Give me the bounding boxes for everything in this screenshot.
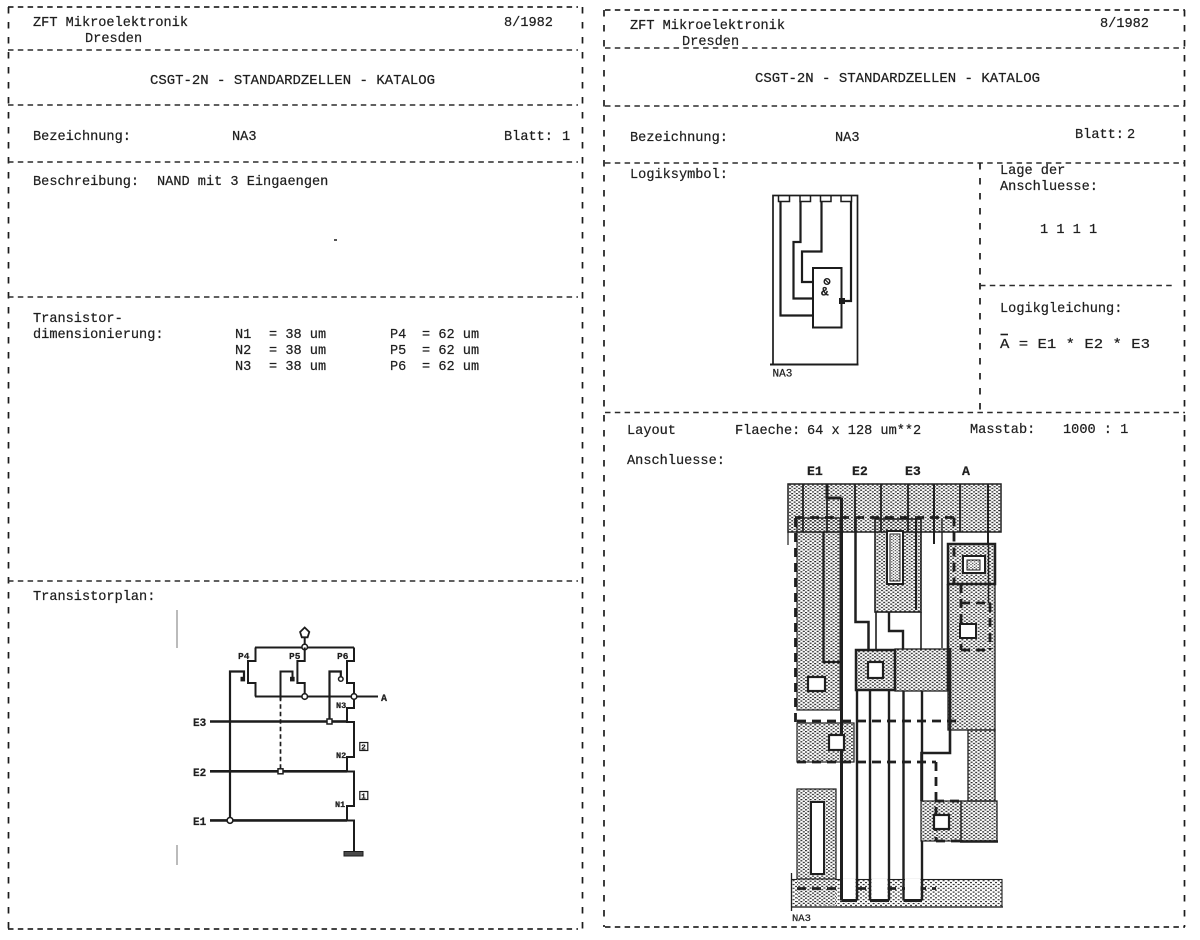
svg-text:N3: N3	[235, 360, 251, 375]
svg-text:P5: P5	[390, 344, 406, 359]
svg-text:= 62 um: = 62 um	[422, 328, 479, 343]
svg-text:Dresden: Dresden	[682, 35, 739, 50]
svg-text:E2: E2	[193, 768, 206, 780]
svg-text:N3: N3	[336, 701, 346, 711]
svg-text:Logiksymbol:: Logiksymbol:	[630, 168, 728, 183]
svg-text:Dresden: Dresden	[85, 32, 142, 47]
svg-text:E1: E1	[807, 464, 823, 479]
svg-text:1: 1	[562, 130, 570, 145]
svg-text:2: 2	[361, 745, 366, 753]
svg-text:CSGT-2N - STANDARDZELLEN - KAT: CSGT-2N - STANDARDZELLEN - KATALOG	[150, 74, 435, 89]
svg-text:1000 : 1: 1000 : 1	[1063, 423, 1128, 438]
svg-text:A = E1 * E2 * E3: A = E1 * E2 * E3	[1000, 338, 1150, 353]
svg-text:ZFT Mikroelektronik: ZFT Mikroelektronik	[33, 16, 188, 31]
svg-text:P4: P4	[390, 328, 406, 343]
svg-text:= 62 um: = 62 um	[422, 344, 479, 359]
svg-text:Blatt:: Blatt:	[504, 130, 553, 145]
svg-text:NA3: NA3	[792, 913, 811, 925]
svg-text:Layout: Layout	[627, 424, 676, 439]
svg-text:2: 2	[1127, 128, 1135, 143]
svg-text:E2: E2	[852, 464, 868, 479]
svg-text:ZFT Mikroelektronik: ZFT Mikroelektronik	[630, 19, 785, 34]
svg-text:Transistorplan:: Transistorplan:	[33, 590, 155, 605]
svg-text:1 1 1 1: 1 1 1 1	[1040, 223, 1097, 238]
svg-text:Beschreibung:: Beschreibung:	[33, 175, 139, 190]
svg-text:Blatt:: Blatt:	[1075, 128, 1124, 143]
svg-text:NAND mit 3 Eingaengen: NAND mit 3 Eingaengen	[157, 175, 328, 190]
svg-text:dimensionierung:: dimensionierung:	[33, 328, 164, 343]
svg-text:8/1982: 8/1982	[504, 16, 553, 31]
svg-text:Logikgleichung:: Logikgleichung:	[1000, 302, 1122, 317]
svg-text:64 x 128 um**2: 64 x 128 um**2	[807, 424, 921, 439]
svg-text:CSGT-2N - STANDARDZELLEN - KAT: CSGT-2N - STANDARDZELLEN - KATALOG	[755, 72, 1040, 87]
svg-text:E3: E3	[193, 718, 207, 730]
svg-text:P4: P4	[238, 651, 250, 662]
svg-text:Bezeichnung:: Bezeichnung:	[630, 131, 728, 146]
svg-text:Bezeichnung:: Bezeichnung:	[33, 130, 131, 145]
svg-text:= 38 um: = 38 um	[269, 328, 326, 343]
svg-text:A: A	[962, 464, 970, 479]
svg-text:NA3: NA3	[773, 369, 793, 381]
svg-text:P6: P6	[390, 360, 406, 375]
svg-text:Lage der: Lage der	[1000, 164, 1065, 179]
svg-text:Transistor-: Transistor-	[33, 312, 123, 327]
svg-text:= 62 um: = 62 um	[422, 360, 479, 375]
svg-text:&: &	[821, 286, 829, 300]
svg-text:= 38 um: = 38 um	[269, 344, 326, 359]
svg-text:1: 1	[361, 794, 366, 802]
svg-text:N1: N1	[235, 328, 251, 343]
svg-text:8/1982: 8/1982	[1100, 17, 1149, 32]
svg-text:A: A	[381, 694, 387, 705]
svg-text:NA3: NA3	[232, 130, 256, 145]
svg-text:E1: E1	[193, 817, 207, 829]
svg-text:NA3: NA3	[835, 131, 859, 146]
svg-text:N2: N2	[336, 751, 346, 761]
svg-text:Flaeche:: Flaeche:	[735, 424, 800, 439]
svg-text:N1: N1	[335, 800, 345, 810]
svg-text:P6: P6	[337, 651, 349, 662]
svg-text:Anschluesse:: Anschluesse:	[1000, 180, 1098, 195]
svg-text:Masstab:: Masstab:	[970, 423, 1035, 438]
svg-text:Anschluesse:: Anschluesse:	[627, 454, 725, 469]
svg-text:P5: P5	[289, 651, 301, 662]
svg-text:= 38 um: = 38 um	[269, 360, 326, 375]
svg-text:N2: N2	[235, 344, 251, 359]
svg-text:E3: E3	[905, 464, 921, 479]
